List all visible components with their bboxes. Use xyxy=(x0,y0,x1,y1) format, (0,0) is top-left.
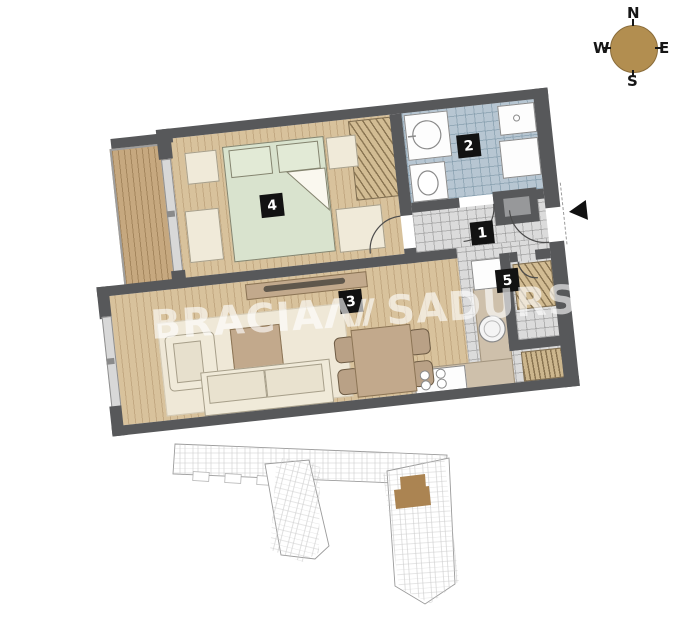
highlighted-unit xyxy=(394,486,431,509)
compass-tick-north xyxy=(632,19,634,26)
bathroom-vanity xyxy=(404,110,453,160)
wall-stub xyxy=(509,252,518,263)
shaft-inner xyxy=(503,196,531,217)
wall-stub xyxy=(535,248,551,260)
bedroom-dresser xyxy=(185,208,224,263)
entrance-arrow-icon xyxy=(568,200,588,222)
dining-table xyxy=(350,324,417,398)
compass-tick-west xyxy=(603,47,611,49)
compass-rose: N E S W xyxy=(593,6,673,90)
room-label-bedroom: 4 xyxy=(259,193,284,218)
washing-machine xyxy=(499,137,542,179)
pillow-right xyxy=(276,141,321,173)
compass-tick-south xyxy=(632,70,634,77)
compass-tick-east xyxy=(655,47,663,49)
compass-disc-icon xyxy=(610,25,658,73)
pillow-left xyxy=(228,146,273,178)
room-label-living: 3 xyxy=(338,289,363,314)
bathroom-sink xyxy=(497,102,537,136)
site-plan-minimap xyxy=(163,428,483,613)
bedroom-bench xyxy=(335,204,385,253)
toilet xyxy=(409,161,449,203)
room-label-hall: 1 xyxy=(470,220,495,245)
room-label-bathroom: 2 xyxy=(456,133,481,158)
room-label-wardrobe: 5 xyxy=(495,268,520,293)
nightstand-left xyxy=(184,150,219,185)
apartment-floorplan: 1 2 3 4 5 xyxy=(80,87,580,436)
storage-closet xyxy=(521,347,565,381)
floorplan-page: { "compass": {"north": "N", "east": "E",… xyxy=(0,0,694,633)
nightstand-right xyxy=(326,135,359,170)
entrance-dashed-line xyxy=(560,183,568,245)
